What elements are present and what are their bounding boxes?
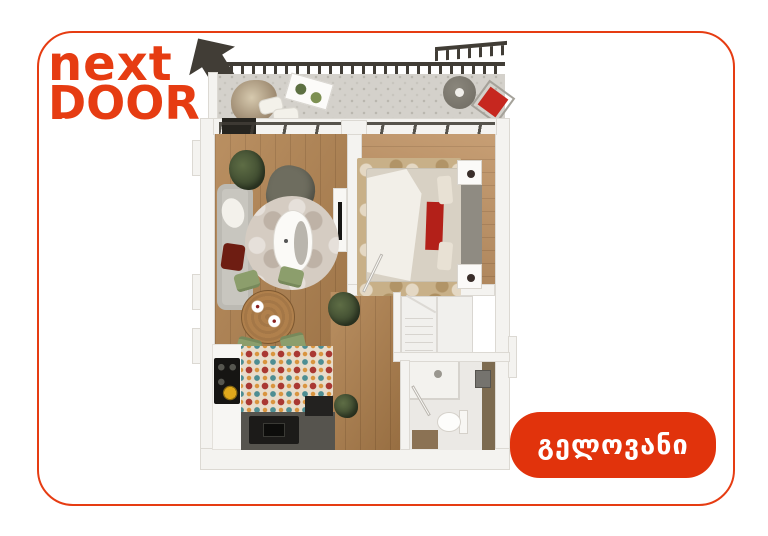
project-badge[interactable]: გელოვანი: [510, 412, 716, 478]
sink-basin: [263, 423, 285, 437]
door-knob-dot-icon: [64, 70, 69, 75]
tv-icon: [338, 202, 342, 240]
bed-pillow: [437, 241, 453, 270]
island-appliance: [305, 396, 333, 416]
nightstand: [457, 160, 482, 185]
bed-pillow: [437, 175, 453, 204]
nextdoor-logo: next DOOR: [48, 44, 200, 126]
island-sink: [249, 416, 299, 444]
wall-pilaster: [192, 140, 201, 176]
bathroom-mat: [412, 430, 438, 449]
headboard-panel: [461, 184, 482, 268]
coffee-table-dot: [284, 239, 288, 243]
project-badge-label: გელოვანი: [537, 430, 689, 461]
wall-right: [495, 118, 510, 470]
wall-bathroom-left: [400, 360, 410, 450]
sofa-pillow-red: [220, 243, 245, 272]
hallway-plant: [328, 292, 360, 326]
potted-plant-icon: [294, 82, 308, 96]
bathroom-sink: [475, 370, 491, 388]
coffee-table-shade: [294, 221, 308, 265]
coffee-table: [273, 210, 313, 274]
vase-icon: [467, 274, 475, 282]
cooktop: [214, 358, 240, 404]
balcony-railing-upper: [435, 41, 507, 61]
potted-plant-icon: [309, 91, 323, 105]
wall-bottom: [200, 448, 510, 470]
wall-pilaster: [192, 328, 201, 364]
wall-bathroom-top: [393, 352, 510, 362]
image-canvas: next DOOR: [0, 0, 768, 536]
wall-stairs-left: [393, 292, 401, 356]
toilet-bowl: [437, 412, 461, 432]
window-mullion-gap: [341, 120, 367, 135]
door-knob-dot-icon: [61, 118, 66, 123]
red-chair-seat: [478, 87, 509, 118]
logo-text-door: DOOR: [48, 82, 200, 126]
shower-head-icon: [434, 370, 442, 378]
vase-icon: [467, 170, 475, 178]
hallway-plant: [334, 394, 358, 418]
nightstand: [457, 264, 482, 289]
stair-divider: [436, 297, 438, 353]
floor-plan: [195, 38, 515, 478]
wall-pilaster: [192, 274, 201, 310]
table-center-dot: [455, 88, 464, 97]
stairs: [401, 296, 473, 354]
living-room-plant: [229, 150, 265, 190]
stair-treads: [405, 311, 433, 353]
